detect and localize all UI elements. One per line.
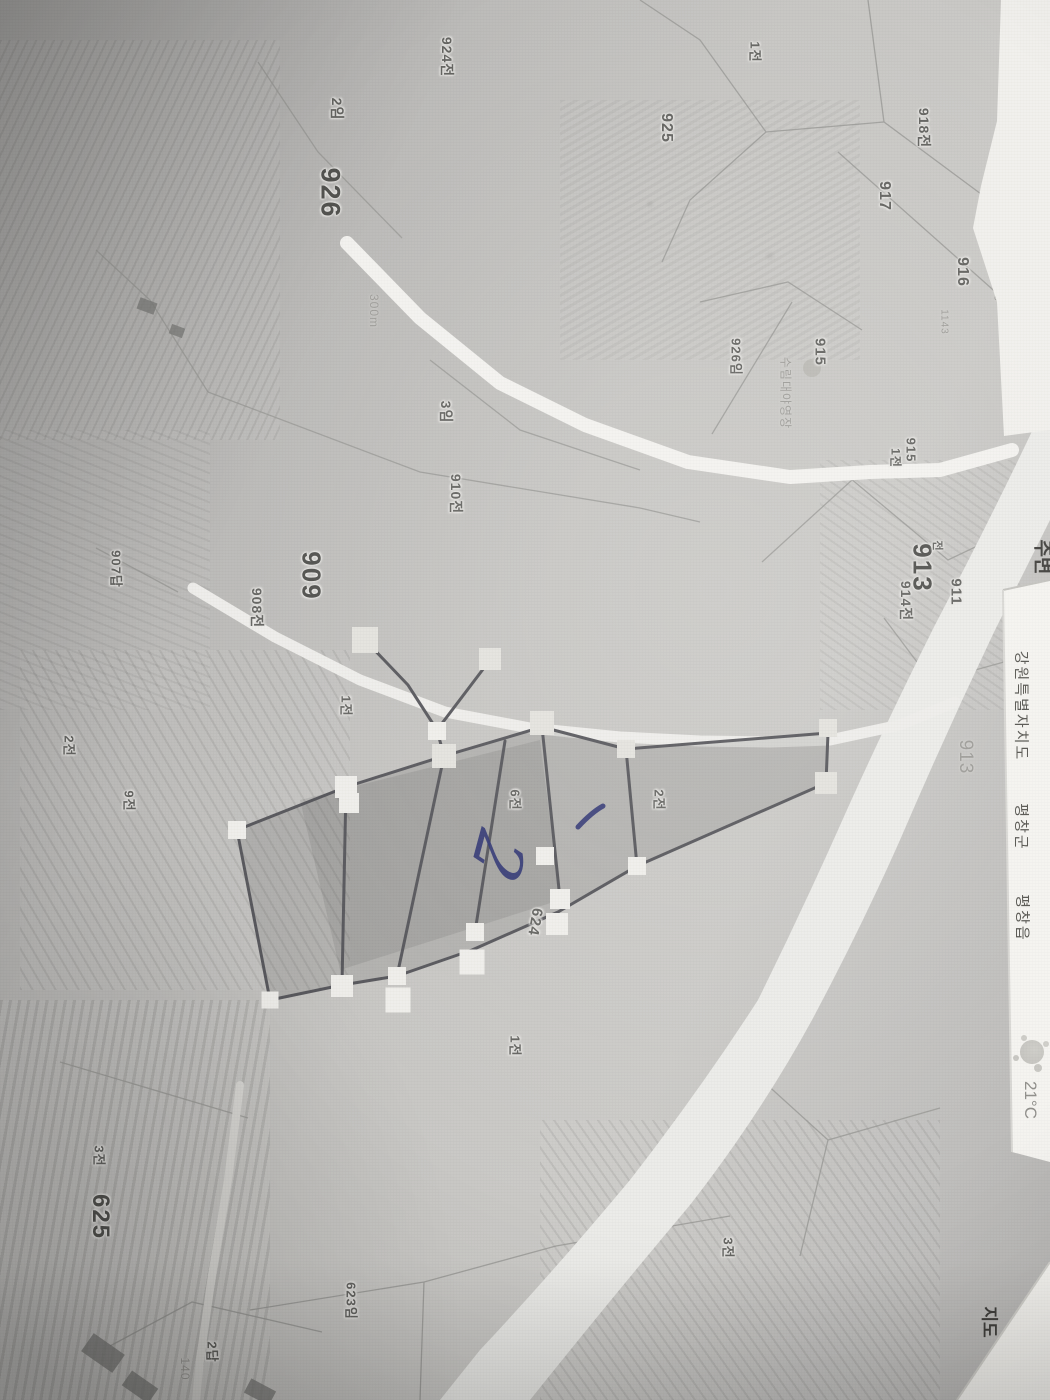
parcel-label: 300m xyxy=(367,294,381,328)
vertex-handle[interactable] xyxy=(546,913,568,935)
parcel-label: 6전 xyxy=(507,789,526,810)
nearby-button[interactable]: 주변 xyxy=(1031,540,1050,575)
parcel-label: 917 xyxy=(875,181,893,211)
vertex-handle[interactable] xyxy=(428,722,446,740)
vertex-handle[interactable] xyxy=(339,793,359,813)
vertex-handle[interactable] xyxy=(386,988,411,1013)
vertex-handle[interactable] xyxy=(628,857,646,875)
parcel-label: 623임 xyxy=(343,1282,362,1320)
parcel-label: 910전 xyxy=(446,474,466,514)
parcel-label: 926임 xyxy=(728,338,747,376)
parcel-label: 625 xyxy=(86,1194,114,1240)
ui-top-white xyxy=(973,0,1050,436)
parcel-label: 913 xyxy=(954,740,976,775)
handwritten-ink xyxy=(578,806,603,827)
forest-texture xyxy=(560,100,860,360)
field-texture xyxy=(540,1120,940,1400)
parcel-label: 915 xyxy=(904,438,919,463)
map-canvas[interactable]: 924전1전9252임926918전91791611431143926임9153… xyxy=(0,0,1050,1400)
ui-bottom-white xyxy=(957,1262,1050,1400)
vertex-handle[interactable] xyxy=(479,648,501,670)
map-toggle-map[interactable]: 지도 xyxy=(979,1306,1004,1337)
parcel-label: 140 xyxy=(178,1357,192,1380)
vertex-handle[interactable] xyxy=(617,740,635,758)
parcel-label: 전 xyxy=(930,540,946,551)
sun-icon xyxy=(1020,1040,1044,1064)
parcel-label: 3전 xyxy=(720,1237,739,1258)
parcel-label: 1전 xyxy=(888,448,905,468)
parcel-label: 1전 xyxy=(338,695,357,716)
vertex-handle[interactable] xyxy=(388,967,406,985)
handwritten-annotation-2: 2 xyxy=(455,820,540,893)
parcel-label: 3전 xyxy=(91,1145,110,1166)
parcel-label: 911 xyxy=(948,578,965,605)
parcel-selection xyxy=(237,640,828,1000)
vertex-handle[interactable] xyxy=(550,889,570,909)
region-province[interactable]: 강원특별자치도 xyxy=(1012,651,1033,762)
vertex-handle[interactable] xyxy=(536,847,554,865)
field-texture xyxy=(0,40,280,440)
parcel-label: 918전 xyxy=(914,108,934,148)
region-town[interactable]: 평창읍 xyxy=(1013,894,1034,941)
parcel-label: 3임 xyxy=(436,401,456,424)
parcel-label: 924전 xyxy=(437,37,457,77)
parcel-label: 1전 xyxy=(507,1035,526,1056)
parcel-label: 907답 xyxy=(108,550,127,588)
vertex-handle[interactable] xyxy=(530,711,554,735)
parcel-label: 925 xyxy=(657,113,675,143)
vertex-handle[interactable] xyxy=(432,744,456,768)
selection-handles xyxy=(228,627,837,1013)
parcel-label: 926 xyxy=(315,167,346,218)
parcel-label: 수림대야영장 xyxy=(778,357,795,429)
vertex-handle[interactable] xyxy=(815,772,837,794)
vertex-handle[interactable] xyxy=(262,992,279,1009)
parcel-label: 624 xyxy=(524,907,546,938)
parcel-label: 916 xyxy=(953,257,971,287)
parcel-label: 909 xyxy=(296,551,327,600)
road xyxy=(193,588,955,742)
region-county[interactable]: 평창군 xyxy=(1012,803,1033,850)
field-texture xyxy=(20,650,350,990)
vertex-handle[interactable] xyxy=(466,923,484,941)
parcel-label: 2임 xyxy=(327,98,347,121)
vertex-handle[interactable] xyxy=(819,719,837,737)
parcel-label: 908전 xyxy=(247,588,267,628)
parcel-label: 9전 xyxy=(121,790,140,811)
parcel-label: 1전 xyxy=(747,41,766,62)
vertex-handle[interactable] xyxy=(352,627,378,653)
field-texture xyxy=(0,430,210,710)
vertex-handle[interactable] xyxy=(335,776,357,798)
vertex-handle[interactable] xyxy=(228,821,246,839)
parcel-label: 2전 xyxy=(651,789,670,810)
parcel-label: 915 xyxy=(812,338,829,366)
vertex-handle[interactable] xyxy=(460,950,485,975)
parcel-label: 2전 xyxy=(61,735,80,756)
vertex-handle[interactable] xyxy=(331,975,353,997)
parcel-label: 1143 xyxy=(939,309,950,335)
parcel-label: 914전 xyxy=(896,581,916,621)
temperature: 21°C xyxy=(1020,1081,1040,1119)
parcel-label: 2답 xyxy=(204,1341,223,1362)
parcel-label: 1143 xyxy=(992,276,1003,302)
field-texture xyxy=(0,1000,270,1400)
